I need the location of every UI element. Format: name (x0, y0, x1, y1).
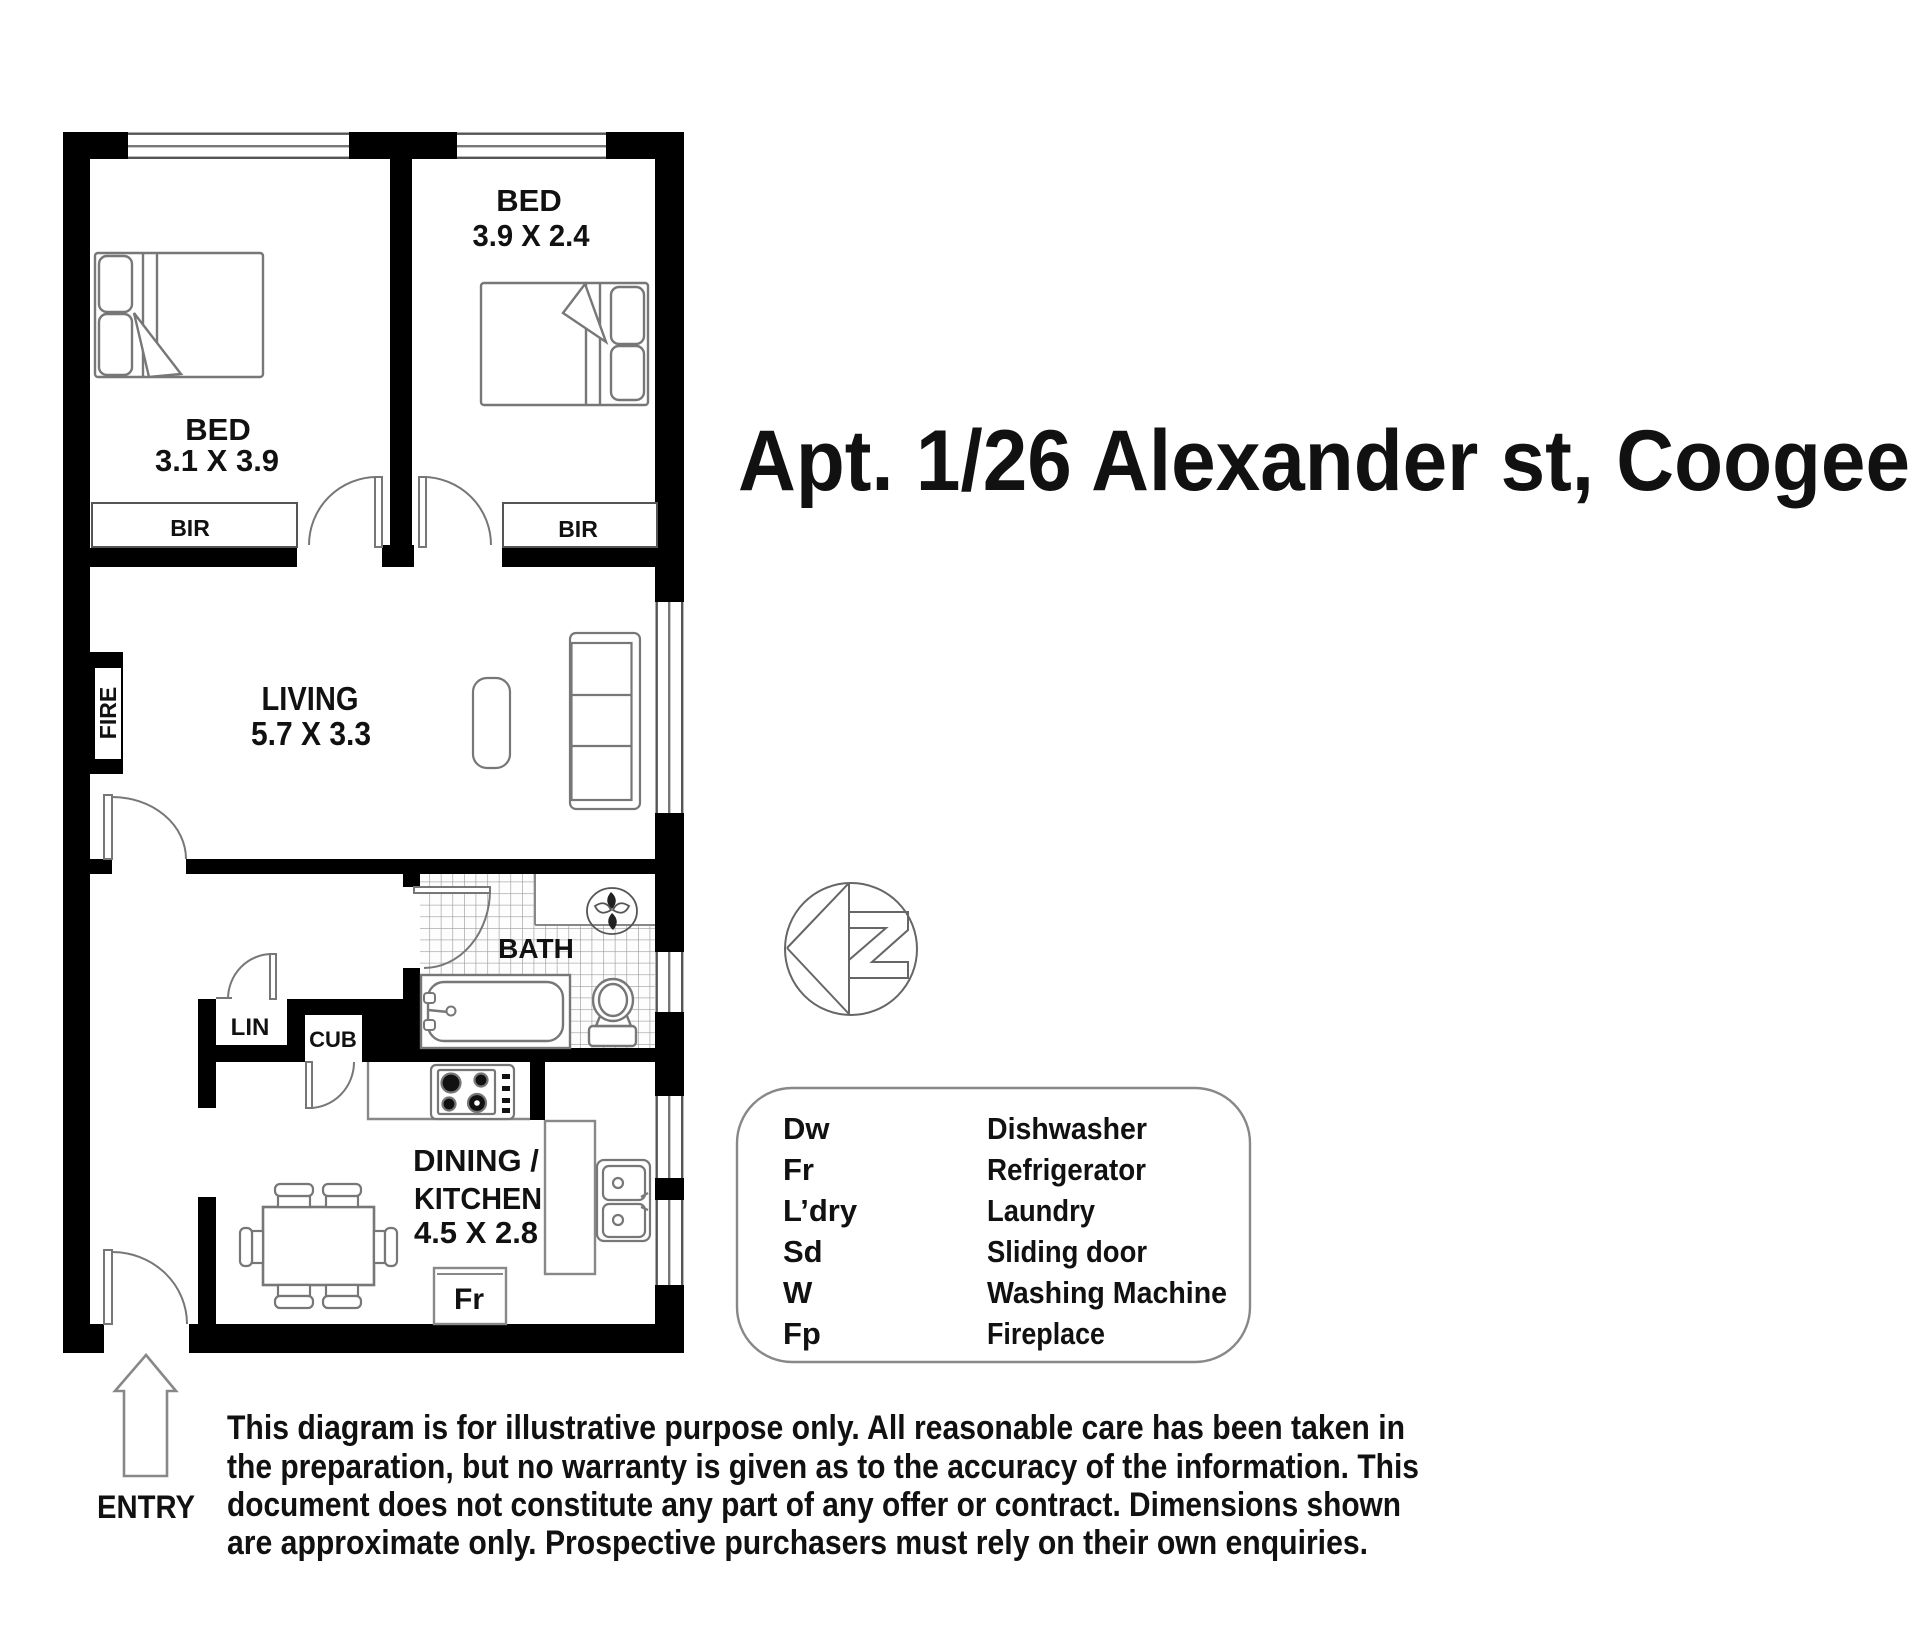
svg-text:3.1 X 3.9: 3.1 X 3.9 (155, 443, 279, 478)
svg-text:Dishwasher: Dishwasher (987, 1111, 1147, 1146)
svg-text:Sd: Sd (783, 1234, 823, 1269)
svg-text:BATH: BATH (498, 933, 574, 964)
svg-text:Dw: Dw (783, 1111, 830, 1146)
svg-text:BIR: BIR (558, 516, 598, 542)
svg-text:BIR: BIR (170, 515, 210, 541)
svg-text:BED: BED (496, 183, 561, 218)
svg-text:Sliding door: Sliding door (987, 1234, 1147, 1269)
svg-text:5.7 X 3.3: 5.7 X 3.3 (251, 715, 371, 752)
svg-text:KITCHEN: KITCHEN (414, 1181, 542, 1216)
svg-text:LIN: LIN (231, 1014, 270, 1041)
svg-text:L’dry: L’dry (783, 1193, 858, 1228)
svg-text:document does not constitute a: document does not constitute any part of… (227, 1486, 1401, 1524)
svg-text:BED: BED (185, 412, 250, 447)
svg-text:Fr: Fr (783, 1152, 814, 1187)
svg-text:CUB: CUB (309, 1027, 357, 1052)
svg-text:are approximate only. Prospect: are approximate only. Prospective purcha… (227, 1524, 1368, 1562)
svg-text:Apt. 1/26 Alexander st, Coogee: Apt. 1/26 Alexander st, Coogee (738, 413, 1910, 509)
svg-text:W: W (783, 1275, 813, 1310)
svg-text:ENTRY: ENTRY (97, 1489, 195, 1525)
svg-text:FIRE: FIRE (95, 687, 121, 739)
svg-text:Fr: Fr (454, 1283, 484, 1316)
svg-text:Washing Machine: Washing Machine (987, 1275, 1227, 1310)
svg-text:4.5 X 2.8: 4.5 X 2.8 (414, 1215, 538, 1250)
svg-text:DINING /: DINING / (413, 1143, 539, 1178)
svg-text:the preparation, but no warran: the preparation, but no warranty is give… (227, 1448, 1419, 1486)
svg-text:Laundry: Laundry (987, 1193, 1096, 1228)
svg-text:LIVING: LIVING (262, 680, 359, 717)
svg-text:This diagram is for illustrati: This diagram is for illustrative purpose… (227, 1409, 1405, 1447)
svg-text:3.9 X 2.4: 3.9 X 2.4 (473, 218, 591, 253)
svg-text:Fireplace: Fireplace (987, 1316, 1105, 1351)
svg-text:Refrigerator: Refrigerator (987, 1152, 1146, 1187)
svg-text:Fp: Fp (783, 1316, 821, 1351)
